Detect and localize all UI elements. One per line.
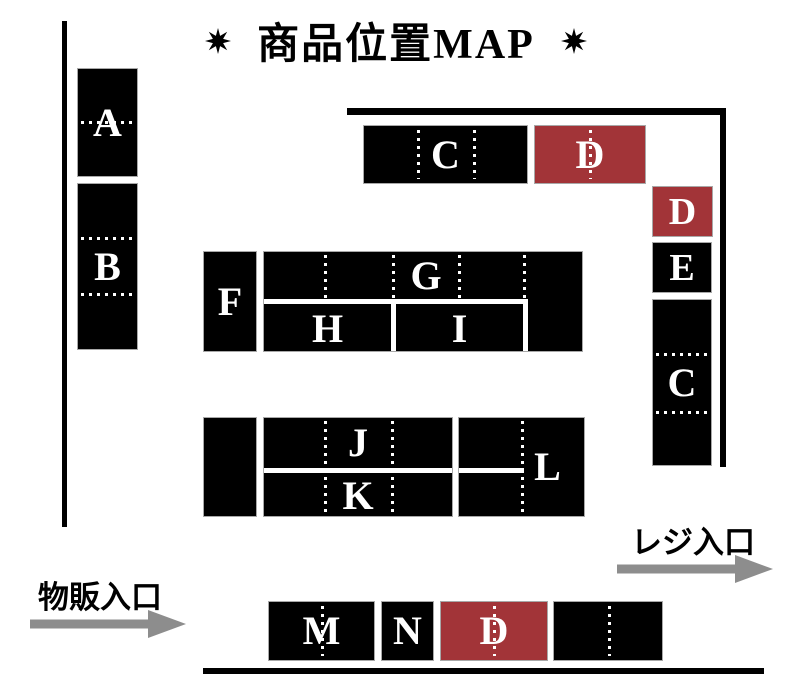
- shelf-divider: [523, 304, 528, 351]
- shelf-a-label: A: [93, 103, 122, 143]
- shelf-divider-dotted: [391, 421, 394, 513]
- shelf-b: B: [77, 183, 138, 350]
- shelf-divider-dotted: [81, 293, 134, 296]
- shelf-c-right: C: [652, 299, 712, 466]
- shelf-e: E: [652, 242, 712, 293]
- shelf-d-bottom-label: D: [480, 611, 509, 651]
- shelf-ghi-group: G H I: [263, 251, 583, 352]
- shelf-n: N: [381, 601, 434, 661]
- wall-left: [62, 21, 67, 527]
- shelf-a: A: [77, 68, 138, 177]
- shelf-unlabeled: [553, 601, 663, 661]
- shelf-divider-dotted: [656, 411, 708, 414]
- shelf-l: L: [458, 417, 585, 517]
- shelf-m: M: [268, 601, 375, 661]
- shelf-d-right: D: [652, 186, 713, 237]
- shelf-divider-dotted: [608, 606, 611, 656]
- shelf-c-right-label: C: [668, 363, 697, 403]
- star-icon: [561, 28, 587, 54]
- page-title: 商品位置MAP: [0, 10, 792, 71]
- shelf-d-top-label: D: [576, 135, 605, 175]
- shelf-divider-dotted: [324, 421, 327, 513]
- shelf-divider-dotted: [656, 353, 708, 356]
- merchandise-entrance-arrow-icon: [30, 610, 186, 638]
- star-icon: [205, 28, 231, 54]
- page-title-text: 商品位置MAP: [257, 10, 535, 71]
- shelf-d-bottom: D: [440, 601, 548, 661]
- shelf-divider-dotted: [324, 255, 327, 298]
- shelf-divider: [391, 304, 396, 351]
- shelf-n-label: N: [393, 611, 422, 651]
- shelf-i-label: I: [452, 309, 468, 349]
- shelf-b-label: B: [94, 247, 121, 287]
- shelf-l-label: L: [534, 447, 561, 487]
- shelf-j-label: J: [348, 423, 368, 463]
- shelf-g-label: G: [410, 256, 441, 296]
- shelf-end-cap: [203, 417, 257, 517]
- shelf-divider-dotted: [523, 255, 526, 298]
- shelf-divider: [264, 299, 528, 304]
- shelf-divider-dotted: [458, 255, 461, 298]
- shelf-d-top: D: [534, 125, 646, 184]
- shelf-divider-dotted: [392, 255, 395, 298]
- shelf-jk-group: J K: [263, 417, 453, 517]
- shelf-h-label: H: [312, 309, 343, 349]
- shelf-e-label: E: [669, 249, 694, 287]
- shelf-f-label: F: [218, 282, 242, 322]
- shelf-k-label: K: [342, 476, 373, 516]
- wall-bottom: [203, 668, 764, 674]
- shelf-divider-dotted: [521, 421, 524, 513]
- shelf-c-top-label: C: [431, 135, 460, 175]
- shelf-divider-dotted: [473, 130, 476, 179]
- wall-right: [720, 109, 726, 467]
- shelf-divider-dotted: [81, 237, 134, 240]
- shelf-f: F: [203, 251, 257, 352]
- shelf-divider-dotted: [417, 130, 420, 179]
- wall-top: [347, 108, 726, 115]
- shelf-m-label: M: [303, 611, 341, 651]
- shelf-c-top: C: [363, 125, 528, 184]
- store-map: 商品位置MAP A B C D D E C F: [0, 0, 792, 700]
- shelf-divider: [459, 468, 524, 473]
- shelf-d-right-label: D: [669, 193, 696, 231]
- register-entrance-arrow-icon: [617, 555, 773, 583]
